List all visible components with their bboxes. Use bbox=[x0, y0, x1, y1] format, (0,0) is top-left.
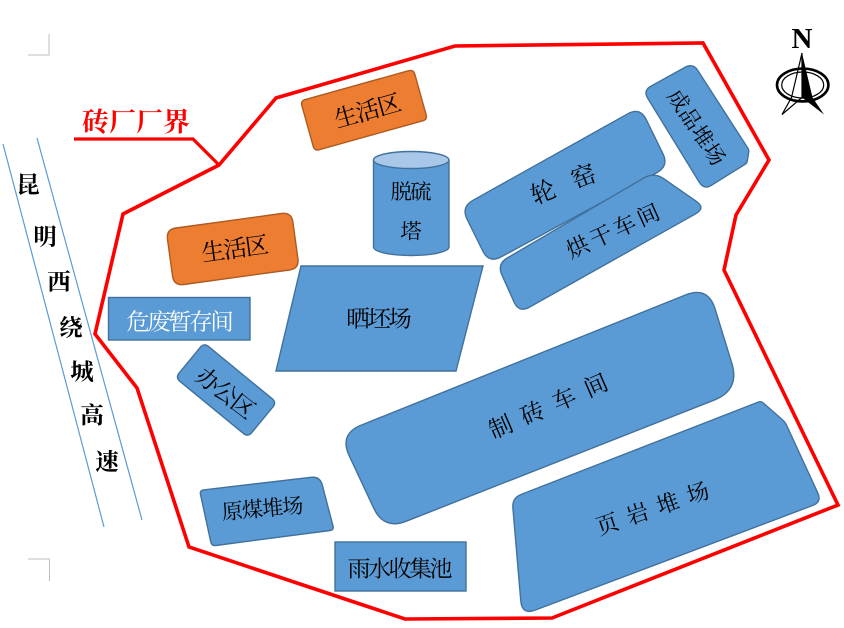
svg-text:N: N bbox=[792, 23, 813, 55]
